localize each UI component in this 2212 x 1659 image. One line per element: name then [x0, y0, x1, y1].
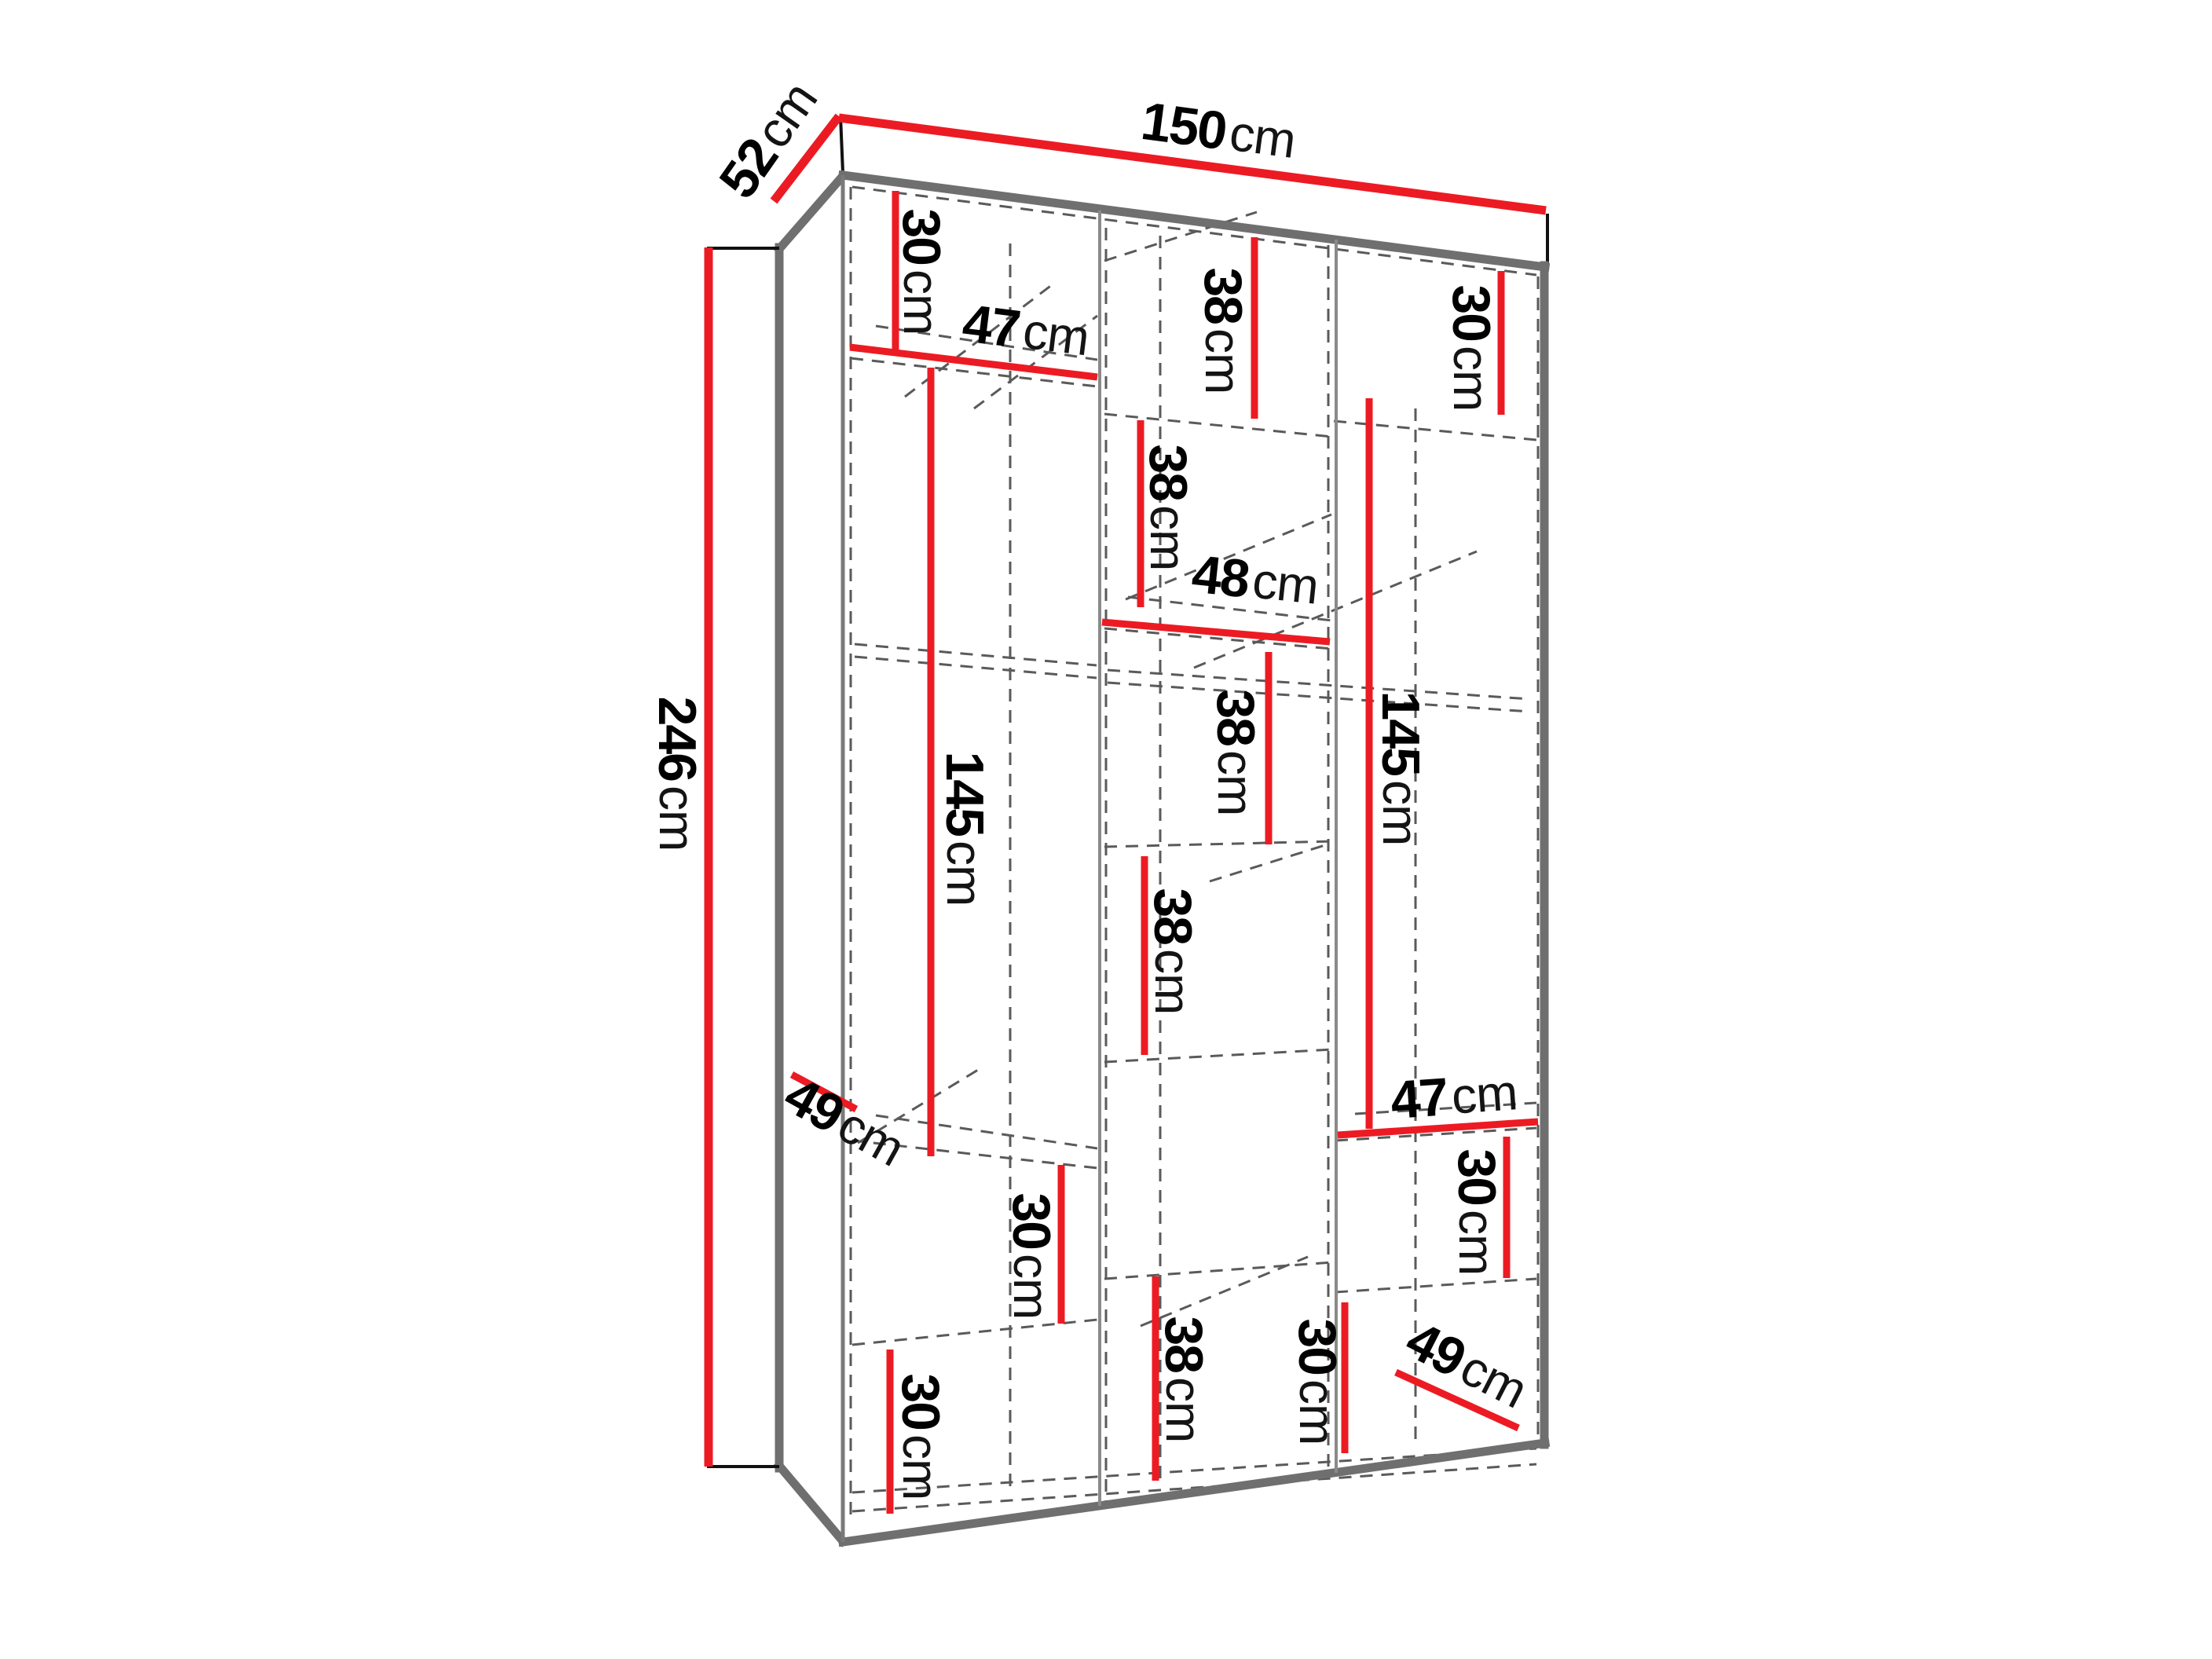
svg-text:cm: cm	[1020, 302, 1092, 367]
svg-text:cm: cm	[649, 786, 705, 851]
svg-text:48: 48	[1189, 544, 1251, 609]
dim-label-right-top-section: 30cm	[1441, 284, 1501, 411]
svg-text:30: 30	[1447, 1148, 1507, 1205]
svg-text:30: 30	[892, 208, 951, 265]
svg-text:cm: cm	[892, 1434, 949, 1500]
svg-text:30: 30	[1287, 1318, 1347, 1375]
dim-label-middle-section-3: 38cm	[1206, 689, 1265, 815]
dim-label-middle-section-2: 38cm	[1138, 444, 1198, 570]
svg-text:cm: cm	[1155, 1377, 1212, 1442]
svg-text:150: 150	[1138, 91, 1230, 161]
svg-text:cm: cm	[893, 269, 950, 335]
svg-text:cm: cm	[1144, 949, 1201, 1014]
svg-text:30: 30	[1002, 1192, 1061, 1249]
svg-text:38: 38	[1193, 267, 1253, 324]
dim-label-middle-top-section: 38cm	[1193, 267, 1253, 394]
svg-text:30: 30	[891, 1373, 950, 1430]
svg-text:cm: cm	[1140, 505, 1196, 570]
svg-text:30: 30	[1441, 284, 1501, 341]
dim-label-left-hanging-space: 145cm	[935, 752, 994, 906]
svg-text:47: 47	[959, 293, 1022, 359]
dim-label-overall-depth: 52cm	[708, 71, 829, 209]
dim-label-right-bottom-section: 30cm	[1287, 1318, 1347, 1445]
svg-text:145: 145	[1371, 691, 1430, 776]
diagram-canvas: 150cm 52cm 246cm 30cm 47cm 38cm 30cm 38c…	[0, 0, 2212, 1659]
svg-text:cm: cm	[1250, 552, 1320, 615]
svg-text:cm: cm	[936, 840, 993, 906]
svg-text:cm: cm	[1207, 750, 1264, 815]
dim-label-right-lower-section: 30cm	[1447, 1148, 1507, 1275]
dim-label-middle-shelf-width: 48cm	[1189, 544, 1321, 616]
svg-text:cm: cm	[1443, 346, 1500, 411]
height-dimension-ticks	[707, 248, 779, 1467]
svg-text:38: 38	[1154, 1316, 1214, 1372]
dim-label-left-bottom-section: 30cm	[891, 1373, 950, 1500]
svg-text:47: 47	[1389, 1067, 1449, 1130]
svg-text:cm: cm	[1003, 1254, 1060, 1319]
svg-text:38: 38	[1143, 888, 1203, 944]
dim-label-middle-section-4: 38cm	[1143, 888, 1203, 1014]
svg-text:cm: cm	[1372, 780, 1429, 845]
dim-label-right-hanging-space: 145cm	[1371, 691, 1430, 846]
dim-label-right-shelf-width: 47cm	[1389, 1062, 1519, 1130]
dim-label-left-top-section: 30cm	[892, 208, 951, 335]
dim-label-left-lower-section: 30cm	[1002, 1192, 1061, 1319]
dim-label-overall-height: 246cm	[647, 697, 707, 851]
svg-text:cm: cm	[1448, 1210, 1505, 1275]
svg-text:cm: cm	[1289, 1379, 1346, 1445]
svg-text:246: 246	[647, 697, 707, 782]
wardrobe-dimension-diagram: 150cm 52cm 246cm 30cm 47cm 38cm 30cm 38c…	[0, 0, 2212, 1659]
svg-text:cm: cm	[1449, 1064, 1518, 1125]
dim-label-middle-bottom-section: 38cm	[1154, 1316, 1214, 1442]
svg-text:145: 145	[935, 752, 994, 837]
svg-text:38: 38	[1138, 444, 1198, 500]
svg-text:38: 38	[1206, 689, 1265, 745]
svg-text:cm: cm	[1226, 104, 1298, 169]
svg-text:cm: cm	[1195, 328, 1251, 394]
